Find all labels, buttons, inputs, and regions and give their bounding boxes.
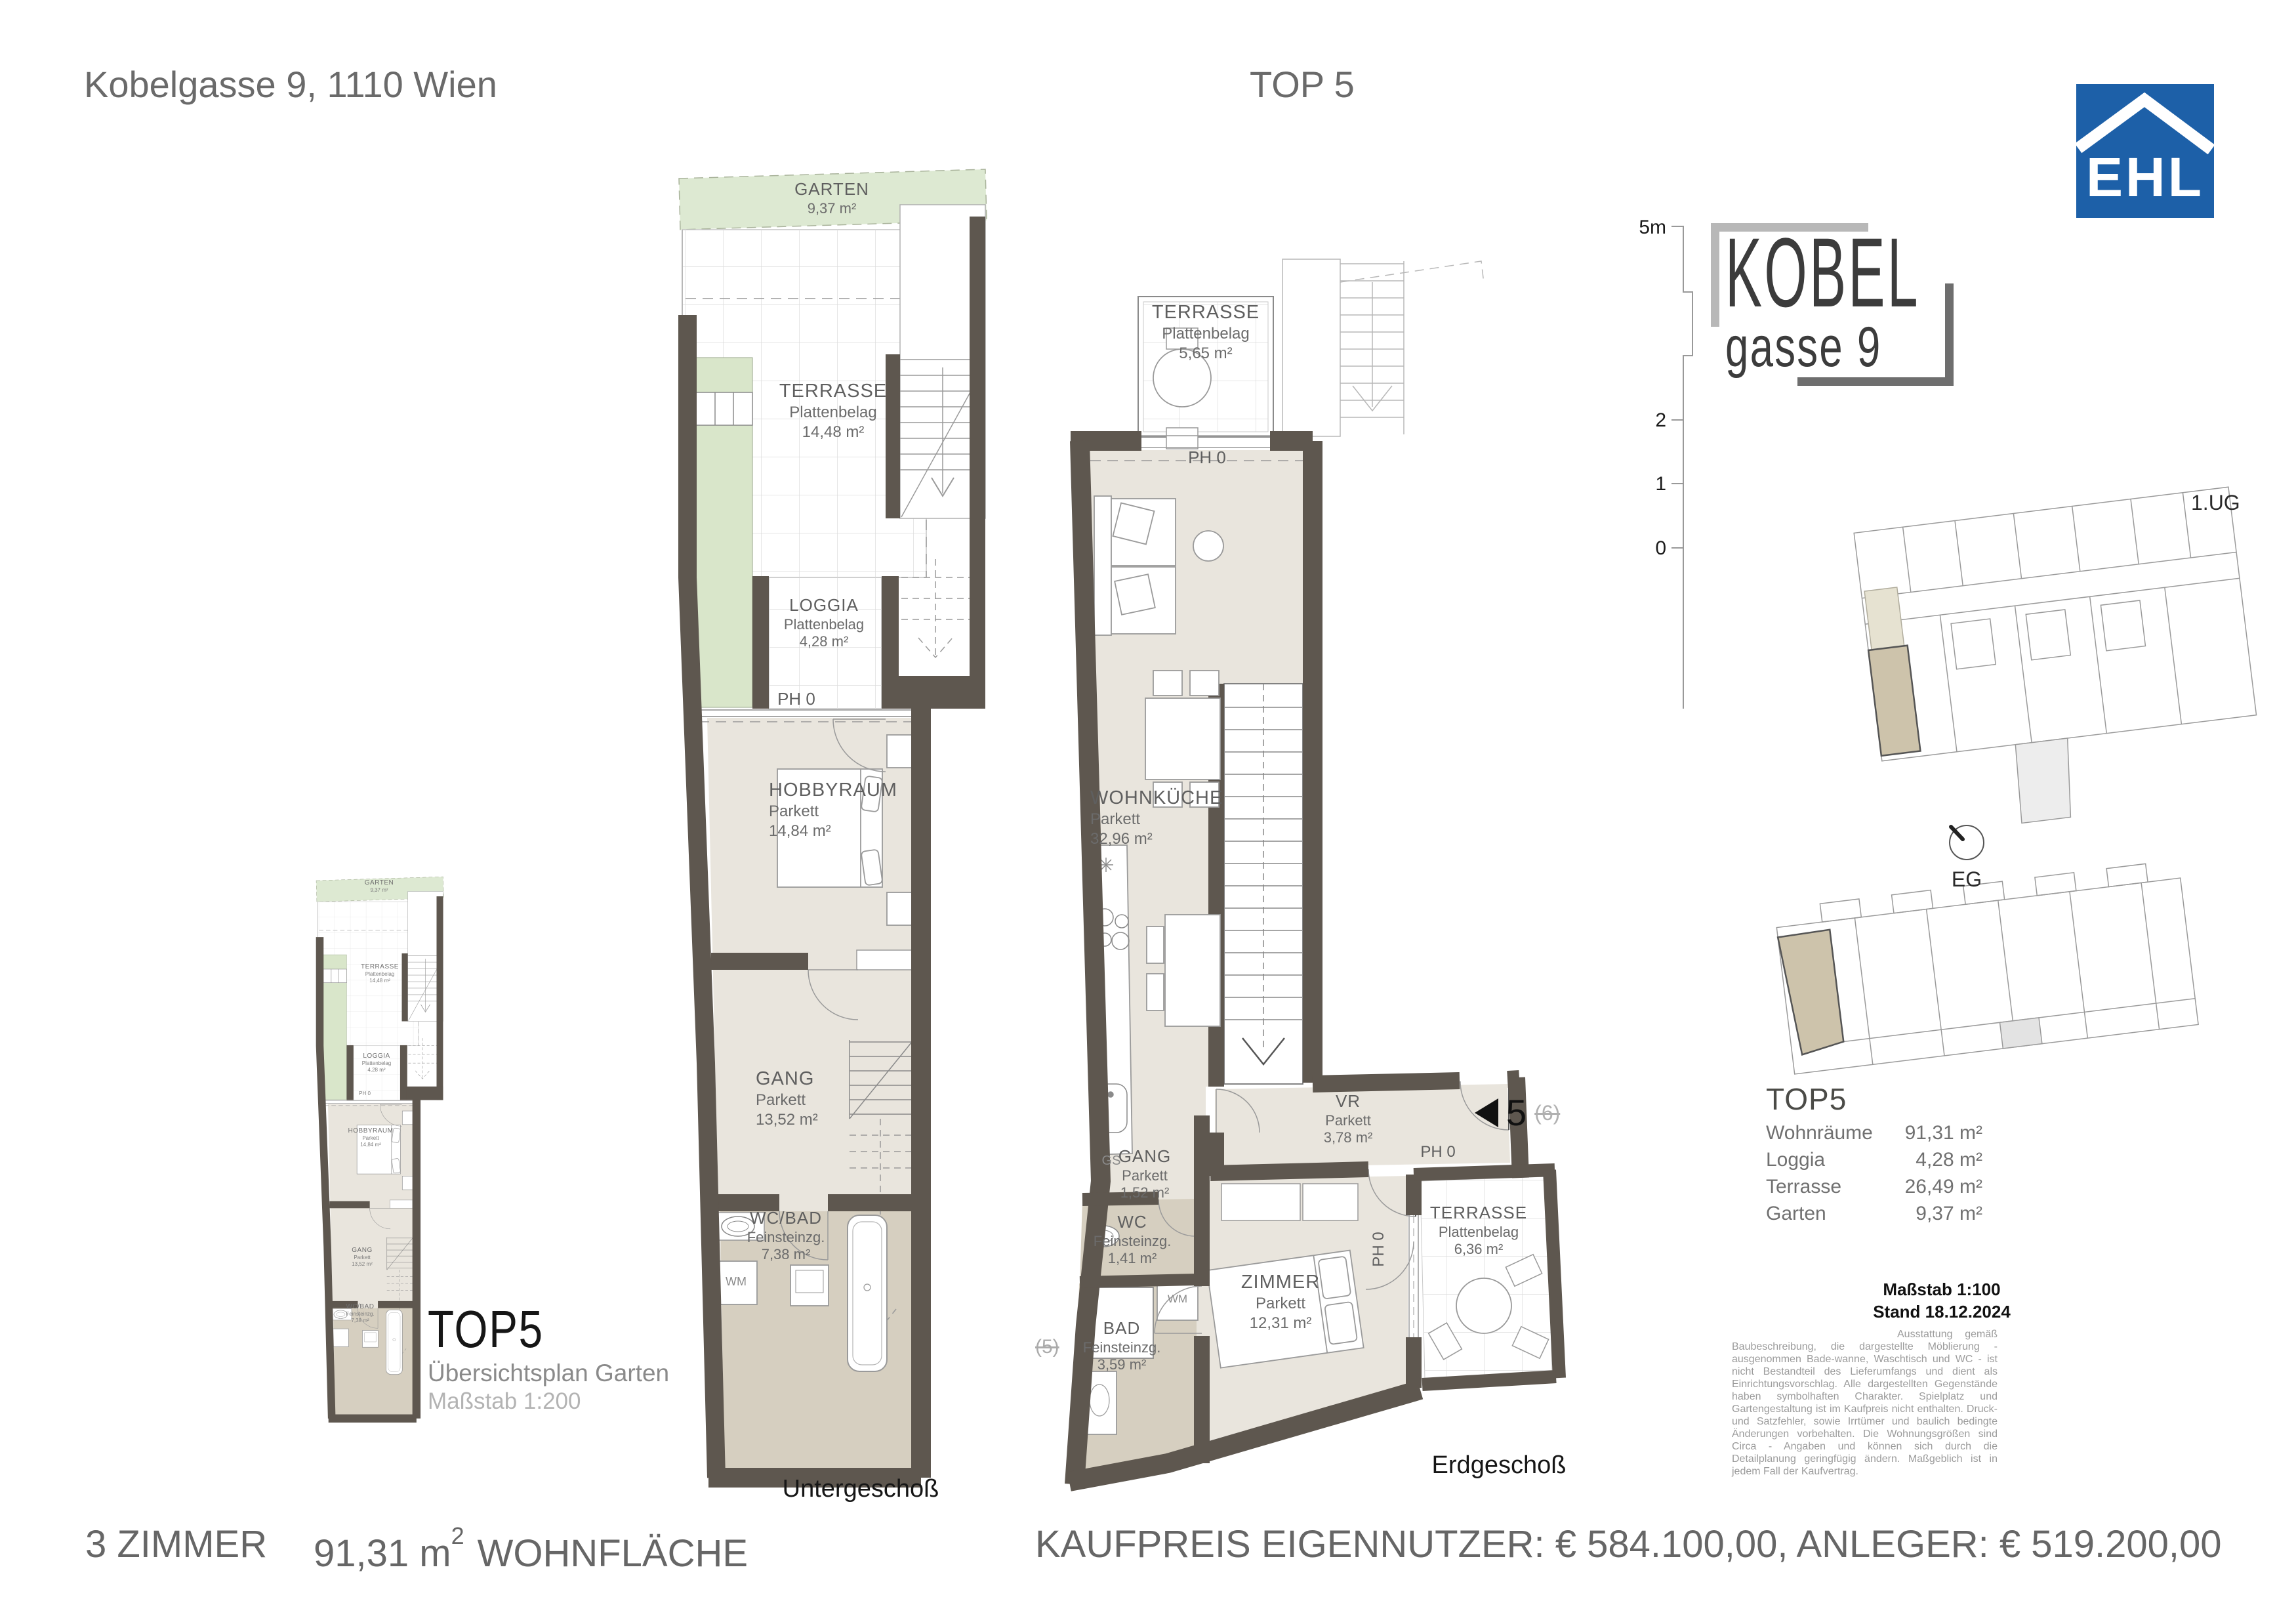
room-name: GARTEN bbox=[794, 178, 869, 200]
room-area: 4,28 m² bbox=[362, 1067, 391, 1073]
room-area: 9,37 m² bbox=[794, 200, 869, 218]
ph0-label: PH 0 bbox=[359, 1091, 371, 1097]
scalebar-label-2: 2 bbox=[1639, 409, 1666, 432]
footer-rooms: 3 ZIMMER bbox=[85, 1522, 267, 1566]
room-finish: Parkett bbox=[1241, 1294, 1320, 1313]
disclaimer-text: Ausstattung gemäß Baubeschreibung, die d… bbox=[1732, 1328, 1998, 1478]
room-finish: Feinsteinzg. bbox=[346, 1311, 374, 1318]
room-finish: Parkett bbox=[769, 802, 897, 821]
summary-row-label: Garten bbox=[1766, 1203, 1826, 1225]
overview-scale: Maßstab 1:200 bbox=[428, 1388, 581, 1415]
room-finish: Feinsteinzg. bbox=[1094, 1233, 1172, 1251]
room-area: 14,84 m² bbox=[348, 1142, 394, 1148]
room-area: 4,28 m² bbox=[784, 633, 864, 651]
caption-erdgeschoss: Erdgeschoß bbox=[1432, 1451, 1567, 1480]
summary-row-value: 91,31 m² bbox=[1830, 1122, 1982, 1144]
room-area: 7,38 m² bbox=[346, 1318, 374, 1324]
room-finish: Parkett bbox=[1090, 810, 1223, 829]
old-unit-number: (6) bbox=[1534, 1102, 1560, 1123]
room-label-bad: BAD Feinsteinzg. 3,59 m² bbox=[1083, 1318, 1161, 1374]
footer-area-label: WOHNFLÄCHE bbox=[478, 1532, 748, 1575]
caption-untergeschoss: Untergeschoß bbox=[783, 1475, 939, 1503]
plan-date: Stand 18.12.2024 bbox=[1855, 1302, 2028, 1322]
room-name: WC/BAD bbox=[346, 1303, 374, 1311]
room-area: 9,37 m² bbox=[365, 887, 394, 894]
room-name: HOBBYRAUM bbox=[348, 1127, 394, 1135]
room-name: HOBBYRAUM bbox=[769, 778, 897, 802]
room-label-terrasse-top: TERRASSE Plattenbelag 5,65 m² bbox=[1152, 301, 1260, 363]
room-area: 1,41 m² bbox=[1094, 1250, 1172, 1268]
room-name: WC/BAD bbox=[747, 1207, 825, 1229]
summary-row-value: 9,37 m² bbox=[1830, 1203, 1982, 1225]
room-finish: Plattenbelag bbox=[779, 403, 887, 422]
room-name: ZIMMER bbox=[1241, 1270, 1320, 1294]
room-finish: Parkett bbox=[352, 1255, 373, 1261]
room-label-wcbad: WC/BAD Feinsteinzg. 7,38 m² bbox=[747, 1207, 825, 1264]
old-unit-marker-side: (5) bbox=[1035, 1336, 1059, 1358]
page-title-unit: TOP 5 bbox=[1250, 63, 1355, 106]
wm-label-eg: WM bbox=[1168, 1293, 1187, 1306]
mini-label-ph0: PH 0 bbox=[359, 1091, 371, 1097]
room-name: GARTEN bbox=[365, 879, 394, 887]
compass-icon bbox=[1950, 825, 1984, 860]
room-name: WOHNKÜCHE bbox=[1090, 786, 1223, 810]
brand-title: KOBEL bbox=[1725, 223, 1920, 322]
room-finish: Parkett bbox=[1118, 1167, 1172, 1185]
mini-label-loggia: LOGGIA Plattenbelag 4,28 m² bbox=[362, 1052, 391, 1073]
room-area: 7,38 m² bbox=[747, 1246, 825, 1264]
room-name: TERRASSE bbox=[779, 379, 887, 403]
room-label-zimmer: ZIMMER Parkett 12,31 m² bbox=[1241, 1270, 1320, 1333]
room-area: 12,31 m² bbox=[1241, 1314, 1320, 1333]
overview-subtitle: Übersichtsplan Garten bbox=[428, 1360, 669, 1387]
room-finish: Feinsteinzg. bbox=[1083, 1339, 1161, 1357]
room-label-gang-ug: GANG Parkett 13,52 m² bbox=[756, 1067, 818, 1129]
room-area: 5,65 m² bbox=[1152, 344, 1260, 363]
room-name: VR bbox=[1324, 1091, 1373, 1112]
plan-scale: Maßstab 1:100 bbox=[1855, 1280, 2028, 1300]
room-finish: Feinsteinzg. bbox=[747, 1229, 825, 1247]
overview-title: TOP5 bbox=[428, 1303, 544, 1356]
room-area: 14,48 m² bbox=[779, 423, 887, 442]
mini-label-hobbyraum: HOBBYRAUM Parkett 14,84 m² bbox=[348, 1127, 394, 1148]
room-area: 3,59 m² bbox=[1083, 1356, 1161, 1374]
summary-title: TOP5 bbox=[1766, 1081, 1847, 1117]
room-label-wc: WC Feinsteinzg. 1,41 m² bbox=[1094, 1211, 1172, 1268]
brand-subtitle: gasse 9 bbox=[1725, 319, 1881, 375]
ph0-label-top: PH 0 bbox=[1188, 448, 1226, 468]
room-area: 6,36 m² bbox=[1430, 1241, 1527, 1259]
address-title: Kobelgasse 9, 1110 Wien bbox=[84, 63, 497, 106]
room-name: BAD bbox=[1083, 1318, 1161, 1339]
mini-label-gang: GANG Parkett 13,52 m² bbox=[352, 1247, 373, 1267]
room-finish: Plattenbelag bbox=[1430, 1224, 1527, 1241]
siteplan-1ug-label: 1.UG bbox=[2191, 491, 2240, 515]
room-name: LOGGIA bbox=[362, 1052, 391, 1060]
summary-row-value: 4,28 m² bbox=[1830, 1149, 1982, 1171]
room-area: 1,52 m² bbox=[1118, 1184, 1172, 1202]
entry-arrow-icon bbox=[1475, 1098, 1498, 1127]
room-name: TERRASSE bbox=[1430, 1202, 1527, 1224]
mini-label-terrasse: TERRASSE Plattenbelag 14,48 m² bbox=[361, 963, 399, 984]
wm-label-ug: WM bbox=[726, 1275, 747, 1289]
summary-row-value: 26,49 m² bbox=[1830, 1176, 1982, 1198]
footer-area-value: 91,31 m bbox=[314, 1532, 451, 1575]
scalebar-label-0: 0 bbox=[1639, 537, 1666, 560]
room-label-wohnkueche: WOHNKÜCHE Parkett 32,96 m² bbox=[1090, 786, 1223, 848]
unit-number: 5 bbox=[1506, 1094, 1527, 1131]
ph0-label-terrace-door: PH 0 bbox=[1370, 1210, 1388, 1289]
room-label-garten: GARTEN 9,37 m² bbox=[794, 178, 869, 217]
ehl-logo-text: EHL bbox=[2076, 146, 2214, 209]
room-name: LOGGIA bbox=[784, 594, 864, 616]
floorplan-sheet: Kobelgasse 9, 1110 Wien TOP 5 EHL KOBEL … bbox=[0, 0, 2296, 1624]
room-finish: Parkett bbox=[756, 1091, 818, 1110]
room-name: TERRASSE bbox=[1152, 301, 1260, 324]
footer-area-sup: 2 bbox=[451, 1522, 464, 1549]
room-area: 14,84 m² bbox=[769, 822, 897, 841]
room-finish: Plattenbelag bbox=[1152, 324, 1260, 343]
room-area: 3,78 m² bbox=[1324, 1129, 1373, 1147]
room-area: 13,52 m² bbox=[756, 1110, 818, 1129]
ph0-label-entry: PH 0 bbox=[1420, 1143, 1455, 1161]
siteplan-eg-label: EG bbox=[1952, 867, 1982, 892]
footer-price: KAUFPREIS EIGENNUTZER: € 584.100,00, ANL… bbox=[1035, 1522, 2222, 1566]
room-name: TERRASSE bbox=[361, 963, 399, 971]
scale-bar bbox=[1671, 226, 1692, 709]
room-name: WC bbox=[1094, 1211, 1172, 1233]
room-name: GANG bbox=[352, 1247, 373, 1255]
room-label-terrasse-ug: TERRASSE Plattenbelag 14,48 m² bbox=[779, 379, 887, 442]
room-area: 13,52 m² bbox=[352, 1261, 373, 1268]
room-label-vr: VR Parkett 3,78 m² bbox=[1324, 1091, 1373, 1147]
mini-label-garten: GARTEN 9,37 m² bbox=[365, 879, 394, 894]
siteplan-1ug bbox=[1854, 487, 2266, 839]
ph0-label-ug: PH 0 bbox=[777, 689, 815, 709]
unit-entry-marker: 5 (6) bbox=[1475, 1094, 1560, 1131]
room-label-hobbyraum: HOBBYRAUM Parkett 14,84 m² bbox=[769, 778, 897, 841]
scalebar-label-1: 1 bbox=[1639, 473, 1666, 495]
room-finish: Parkett bbox=[1324, 1112, 1373, 1130]
room-name: GANG bbox=[756, 1067, 818, 1091]
scalebar-label-5m: 5m bbox=[1639, 217, 1666, 239]
summary-row-label: Loggia bbox=[1766, 1149, 1825, 1171]
mini-label-wcbad: WC/BAD Feinsteinzg. 7,38 m² bbox=[346, 1303, 374, 1323]
room-name: GANG bbox=[1118, 1146, 1172, 1167]
room-finish: Parkett bbox=[348, 1135, 394, 1142]
room-label-terrasse-bottom: TERRASSE Plattenbelag 6,36 m² bbox=[1430, 1202, 1527, 1259]
room-area: 32,96 m² bbox=[1090, 829, 1223, 848]
siteplan-eg bbox=[1774, 860, 2198, 1074]
room-area: 14,48 m² bbox=[361, 978, 399, 984]
room-finish: Plattenbelag bbox=[361, 971, 399, 978]
room-finish: Plattenbelag bbox=[362, 1060, 391, 1067]
room-finish: Plattenbelag bbox=[784, 616, 864, 634]
footer-area: 91,31 m2WOHNFLÄCHE bbox=[314, 1522, 748, 1575]
room-label-loggia: LOGGIA Plattenbelag 4,28 m² bbox=[784, 594, 864, 651]
room-label-gang-eg: GANG Parkett 1,52 m² bbox=[1118, 1146, 1172, 1202]
